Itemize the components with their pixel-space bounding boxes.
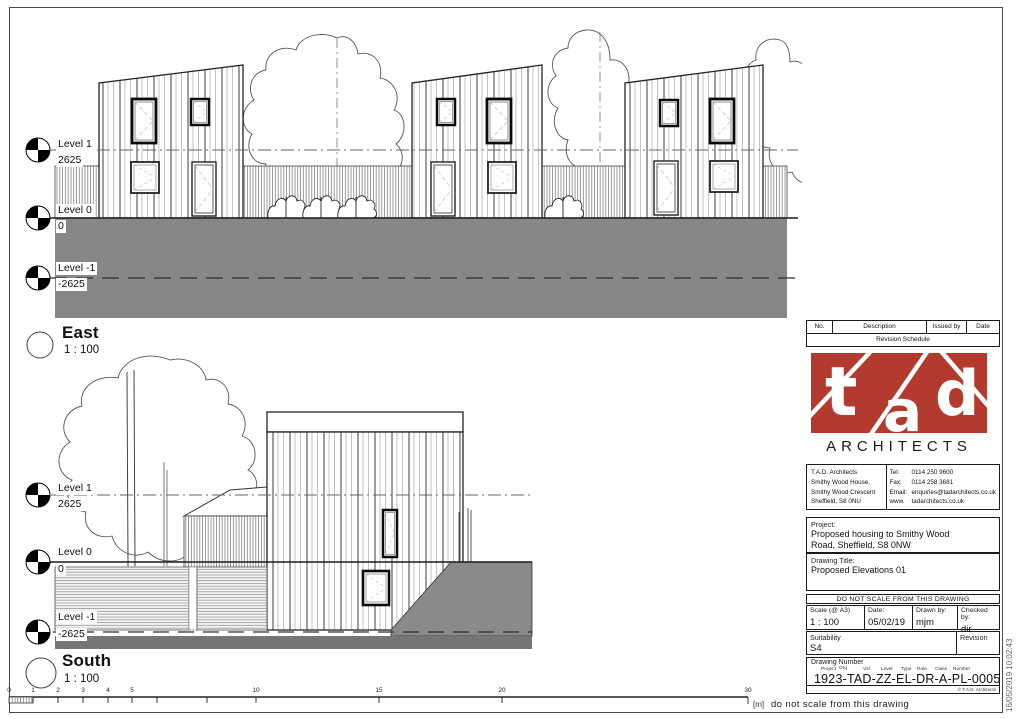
project-box: Project: Proposed housing to Smithy Wood…: [806, 517, 1000, 553]
project-label: Project:: [811, 520, 995, 529]
entrance-door: [192, 162, 216, 216]
levelm1-value-east: -2625: [56, 278, 87, 291]
ground-east: [55, 218, 787, 318]
address-line-1: Smithy Wood House,: [811, 478, 882, 488]
house-unit-2: [412, 65, 542, 218]
datum-marker-level1-south: [26, 483, 50, 507]
revision-col-date: Date: [967, 321, 999, 333]
revision-col-description: Description: [833, 321, 927, 333]
window-upper-small: [660, 100, 678, 126]
levelm1-value-south: -2625: [56, 628, 87, 641]
ground-strip-south: [55, 636, 532, 649]
south-view-title: South: [62, 651, 111, 671]
level1-value-east: 2625: [56, 154, 83, 167]
scale-label: Scale (@ A3): [810, 607, 861, 614]
datum-marker-levelm1-east: [26, 266, 50, 290]
levelm1-label-south: Level -1: [56, 611, 97, 624]
scale-value: 1 : 100: [810, 617, 861, 628]
practice-name: T.A.D. Architects: [811, 468, 882, 478]
level1-value-south: 2625: [56, 498, 83, 511]
web-address: tadarchitects.co.uk: [912, 498, 965, 505]
drawing-number-value: 1923-TAD-ZZ-EL-DR-A-PL-0005: [814, 672, 1000, 686]
south-elevation-drawing: [26, 356, 532, 649]
drawn-by-value: mjm: [916, 617, 954, 628]
fence-south: [184, 516, 267, 567]
revision-label: Revision: [960, 633, 998, 642]
suitability-label: Suitability: [810, 633, 953, 642]
level1-label-south: Level 1: [56, 482, 94, 495]
scalebar-label-0: 0: [7, 687, 11, 694]
plot-timestamp: 16/05/2019 10:02:43: [1005, 639, 1014, 712]
meters-unit-label: [m]: [753, 700, 764, 709]
scalebar-label-15: 15: [375, 687, 382, 694]
title-block: No. Description Issued by Date Revision …: [806, 318, 1000, 698]
window-lower: [488, 162, 516, 193]
address-line-2: Smithy Wood Crescent: [811, 488, 882, 498]
datum-marker-levelm1-south: [26, 620, 50, 644]
email-label: Email:: [890, 488, 912, 498]
window-upper-small: [191, 99, 209, 125]
east-elevation-drawing: [26, 30, 832, 318]
do-not-scale-note: do not scale from this drawing: [771, 699, 909, 710]
date-label: Date:: [868, 607, 909, 614]
scalebar-label-30: 30: [744, 687, 751, 694]
east-view-marker-circle: [27, 332, 53, 358]
datum-marker-level1-east: [26, 138, 50, 162]
meta-row: Scale (@ A3) 1 : 100 Date: 05/02/19 Draw…: [806, 605, 1000, 630]
east-view-title: East: [62, 323, 99, 343]
fax-number: 0114 258 3681: [912, 479, 954, 486]
tel-label: Tel:: [890, 468, 912, 478]
east-view-scale: 1 : 100: [64, 344, 99, 356]
entrance-door: [431, 162, 455, 216]
retaining-wall-2: [197, 567, 267, 630]
drawing-number-box: Drawing Number Project Org Vol Level Typ…: [806, 657, 1000, 694]
window-tall: [383, 510, 397, 557]
scale-bar: [9, 697, 748, 704]
fax-label: Fax:: [890, 478, 912, 488]
contact-box: T.A.D. Architects Smithy Wood House, Smi…: [806, 464, 1000, 510]
window-upper-large: [487, 99, 511, 143]
email-address: enquiries@tadarchitects.co.uk: [912, 489, 996, 496]
suitability-value: S4: [810, 643, 953, 654]
drawing-number-label: Drawing Number: [811, 659, 864, 666]
window-upper-large: [132, 99, 156, 143]
south-view-scale: 1 : 100: [64, 673, 99, 685]
drawing-title-label: Drawing Title:: [811, 556, 995, 565]
retaining-wall-gap: [189, 567, 197, 630]
tad-logo: t a d: [811, 353, 987, 433]
date-value: 05/02/19: [868, 617, 909, 628]
web-label: www.: [890, 497, 912, 507]
entrance-door: [654, 161, 678, 215]
house-unit-3: [625, 65, 763, 218]
window-lower: [710, 161, 738, 192]
window-upper-small: [437, 99, 455, 125]
address-line-3: Sheffield, S8 0NU: [811, 497, 882, 507]
level0-value-east: 0: [56, 220, 66, 233]
logo-architects-word: ARCHITECTS: [811, 438, 987, 455]
scalebar-label-1: 1: [31, 687, 35, 694]
revision-schedule-subtitle: Revision Schedule: [807, 334, 999, 346]
level1-label-east: Level 1: [56, 138, 94, 151]
copyright-note: © T.A.D. Architects: [807, 685, 999, 693]
scalebar-label-2: 2: [56, 687, 60, 694]
window-lower: [363, 571, 389, 605]
tel-number: 0114 250 9600: [912, 469, 954, 476]
revision-col-issued: Issued by: [927, 321, 967, 333]
project-name-line1: Proposed housing to Smithy Wood: [811, 529, 995, 540]
scalebar-label-20: 20: [498, 687, 505, 694]
project-name-line2: Road, Sheffield, S8 0NW: [811, 540, 995, 551]
house-unit-1: [99, 65, 243, 218]
level0-label-east: Level 0: [56, 204, 94, 217]
window-upper-large: [710, 99, 734, 143]
south-view-marker-circle: [26, 658, 56, 688]
scalebar-label-10: 10: [252, 687, 259, 694]
drawn-by-label: Drawn by:: [916, 607, 954, 614]
scalebar-label-4: 4: [106, 687, 110, 694]
revision-schedule-table: No. Description Issued by Date Revision …: [806, 320, 1000, 347]
level0-value-south: 0: [56, 563, 66, 576]
drawing-sheet: Level 1 2625 Level 0 0 Level -1 -2625 Le…: [0, 0, 1024, 719]
suitability-row: Suitability S4 Revision: [806, 631, 1000, 655]
levelm1-label-east: Level -1: [56, 262, 97, 275]
level0-label-south: Level 0: [56, 546, 94, 559]
datum-marker-level0-south: [26, 550, 50, 574]
datum-marker-level0-east: [26, 206, 50, 230]
window-lower: [131, 162, 159, 193]
drawing-title-value: Proposed Elevations 01: [811, 565, 995, 576]
revision-col-no: No.: [807, 321, 833, 333]
scalebar-label-3: 3: [81, 687, 85, 694]
scalebar-label-5: 5: [130, 687, 134, 694]
do-not-scale-banner: DO NOT SCALE FROM THIS DRAWING: [806, 594, 1000, 604]
checked-by-label: Checked by:: [961, 607, 998, 621]
drawing-title-box: Drawing Title: Proposed Elevations 01: [806, 553, 1000, 591]
field-org: Org: [839, 666, 847, 671]
